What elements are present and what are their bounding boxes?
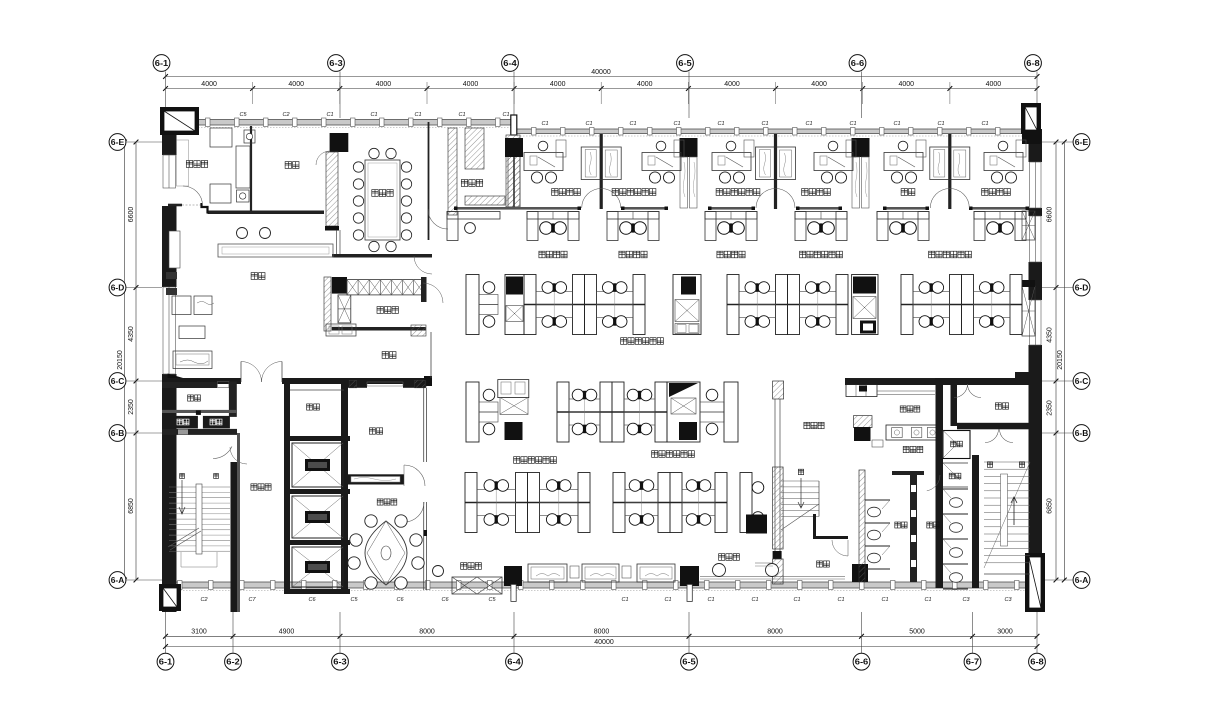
svg-text:C1: C1 bbox=[881, 597, 888, 603]
svg-text:C1: C1 bbox=[458, 112, 465, 118]
svg-text:40000: 40000 bbox=[594, 639, 614, 646]
svg-text:6-6: 6-6 bbox=[851, 58, 865, 68]
svg-text:C6: C6 bbox=[441, 597, 449, 603]
svg-text:6-8: 6-8 bbox=[1026, 58, 1040, 68]
svg-text:C1: C1 bbox=[761, 121, 768, 127]
svg-text:6-6: 6-6 bbox=[855, 657, 869, 667]
svg-text:C1: C1 bbox=[751, 597, 758, 603]
svg-text:4000: 4000 bbox=[724, 81, 740, 88]
svg-text:C1: C1 bbox=[893, 121, 900, 127]
svg-text:6600: 6600 bbox=[128, 207, 135, 223]
svg-text:C5: C5 bbox=[239, 112, 247, 118]
svg-text:6-4: 6-4 bbox=[507, 657, 521, 667]
svg-text:C3: C3 bbox=[962, 597, 970, 603]
svg-text:4350: 4350 bbox=[128, 326, 135, 342]
svg-text:6-5: 6-5 bbox=[678, 58, 692, 68]
svg-text:6-7: 6-7 bbox=[966, 657, 980, 667]
svg-text:C1: C1 bbox=[673, 121, 680, 127]
svg-text:4000: 4000 bbox=[899, 81, 915, 88]
svg-text:C1: C1 bbox=[837, 597, 844, 603]
svg-text:C3: C3 bbox=[1004, 597, 1012, 603]
svg-text:6-D: 6-D bbox=[1075, 282, 1089, 292]
svg-text:C1: C1 bbox=[664, 597, 671, 603]
svg-text:6-D: 6-D bbox=[111, 282, 125, 292]
svg-text:C5: C5 bbox=[350, 597, 358, 603]
svg-text:4000: 4000 bbox=[550, 81, 566, 88]
svg-text:6850: 6850 bbox=[128, 498, 135, 514]
svg-text:6-A: 6-A bbox=[111, 575, 125, 585]
svg-text:8000: 8000 bbox=[767, 629, 783, 636]
svg-text:C6: C6 bbox=[396, 597, 404, 603]
svg-text:C5: C5 bbox=[488, 597, 496, 603]
svg-text:3100: 3100 bbox=[191, 629, 207, 636]
svg-text:5000: 5000 bbox=[909, 629, 925, 636]
svg-text:C1: C1 bbox=[414, 112, 421, 118]
svg-text:6-B: 6-B bbox=[111, 428, 125, 438]
svg-text:4000: 4000 bbox=[376, 81, 392, 88]
svg-text:C1: C1 bbox=[629, 121, 636, 127]
svg-text:C1: C1 bbox=[937, 121, 944, 127]
svg-text:C1: C1 bbox=[707, 597, 714, 603]
svg-text:20150: 20150 bbox=[117, 350, 124, 370]
svg-text:C1: C1 bbox=[621, 597, 628, 603]
svg-text:C1: C1 bbox=[326, 112, 333, 118]
svg-text:4350: 4350 bbox=[1047, 327, 1054, 343]
svg-text:C1: C1 bbox=[541, 121, 548, 127]
svg-text:6-5: 6-5 bbox=[682, 657, 696, 667]
svg-text:8000: 8000 bbox=[594, 629, 610, 636]
svg-text:C2: C2 bbox=[282, 112, 289, 118]
svg-text:6-C: 6-C bbox=[111, 376, 125, 386]
svg-text:6850: 6850 bbox=[1047, 498, 1054, 514]
svg-text:4000: 4000 bbox=[463, 81, 479, 88]
svg-text:C1: C1 bbox=[981, 121, 988, 127]
svg-text:3000: 3000 bbox=[997, 629, 1013, 636]
svg-text:20150: 20150 bbox=[1057, 350, 1064, 370]
svg-text:C7: C7 bbox=[248, 597, 256, 603]
svg-text:6-2: 6-2 bbox=[226, 657, 240, 667]
svg-text:6-1: 6-1 bbox=[159, 657, 173, 667]
svg-text:4000: 4000 bbox=[288, 81, 304, 88]
svg-text:C1: C1 bbox=[717, 121, 724, 127]
svg-text:6-3: 6-3 bbox=[333, 657, 347, 667]
svg-text:6-A: 6-A bbox=[1075, 575, 1089, 585]
svg-text:C1: C1 bbox=[805, 121, 812, 127]
svg-text:6600: 6600 bbox=[1047, 207, 1054, 223]
svg-text:4900: 4900 bbox=[279, 629, 295, 636]
svg-text:C6: C6 bbox=[308, 597, 316, 603]
svg-text:2350: 2350 bbox=[128, 399, 135, 415]
svg-text:6-4: 6-4 bbox=[503, 58, 517, 68]
svg-text:C1: C1 bbox=[502, 112, 509, 118]
svg-text:4000: 4000 bbox=[637, 81, 653, 88]
svg-text:4000: 4000 bbox=[201, 81, 217, 88]
svg-text:6-8: 6-8 bbox=[1030, 657, 1044, 667]
svg-text:8000: 8000 bbox=[419, 629, 435, 636]
svg-text:6-C: 6-C bbox=[1075, 376, 1089, 386]
svg-text:C1: C1 bbox=[924, 597, 931, 603]
svg-text:6-3: 6-3 bbox=[329, 58, 343, 68]
svg-text:C1: C1 bbox=[793, 597, 800, 603]
svg-text:6-E: 6-E bbox=[111, 137, 125, 147]
svg-text:6-B: 6-B bbox=[1075, 428, 1089, 438]
svg-text:4000: 4000 bbox=[986, 81, 1002, 88]
svg-text:C1: C1 bbox=[849, 121, 856, 127]
svg-text:4000: 4000 bbox=[811, 81, 827, 88]
svg-text:C2: C2 bbox=[200, 597, 207, 603]
svg-text:C1: C1 bbox=[370, 112, 377, 118]
svg-text:40000: 40000 bbox=[591, 69, 611, 76]
svg-text:2350: 2350 bbox=[1047, 400, 1054, 416]
svg-text:C1: C1 bbox=[585, 121, 592, 127]
svg-text:6-1: 6-1 bbox=[155, 58, 169, 68]
svg-text:6-E: 6-E bbox=[1075, 137, 1089, 147]
